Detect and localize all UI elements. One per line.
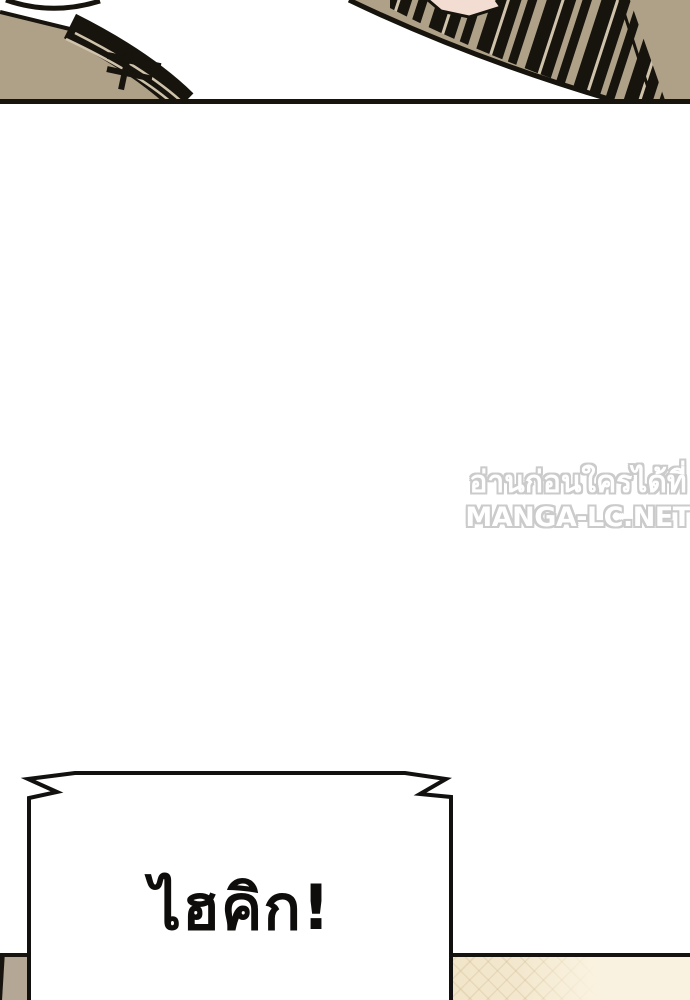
speech-bubble-text: ไฮคิก! bbox=[29, 874, 452, 942]
speech-bubble bbox=[0, 0, 690, 1000]
manga-page: อ่านก่อนใครได้ที่ MANGA-LC.NET ไฮคิก! bbox=[0, 0, 690, 1000]
